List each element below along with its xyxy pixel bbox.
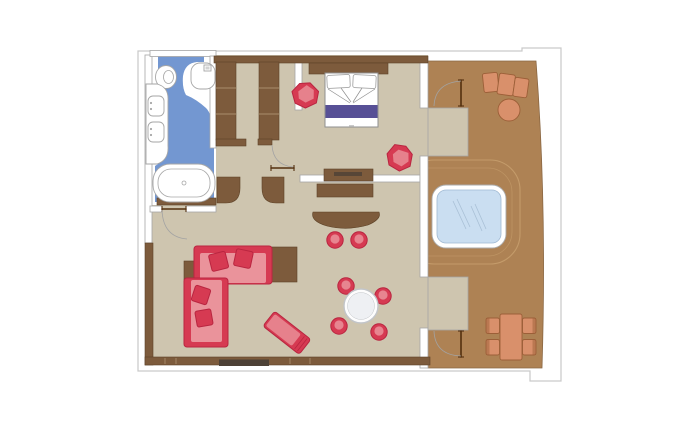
round-side-table <box>498 99 520 121</box>
bar-stool <box>351 232 367 248</box>
whirlpool-tub <box>432 185 506 248</box>
corridor-stub-left <box>217 177 240 203</box>
top-wall <box>214 56 428 63</box>
bottom-wall <box>145 357 430 365</box>
bathtub <box>153 164 215 202</box>
vanity-double-sink <box>146 84 168 164</box>
double-bed <box>325 73 378 127</box>
dining-stool <box>331 318 347 334</box>
console-table <box>270 247 297 282</box>
bed-runner <box>326 105 378 118</box>
media-unit <box>219 360 269 367</box>
tv-console <box>324 169 373 181</box>
desk <box>317 184 373 197</box>
round-dining-table <box>344 289 378 323</box>
outdoor-dining-table <box>500 314 522 360</box>
bar-stool <box>327 232 343 248</box>
toilet <box>191 63 215 89</box>
headboard <box>309 63 388 74</box>
dining-stool <box>371 324 387 340</box>
terrace-vestibule-top <box>428 108 468 156</box>
terrace-vestibule-bottom <box>428 277 468 330</box>
floorplan-canvas <box>0 0 700 433</box>
left-wall <box>145 243 153 365</box>
corridor-stub-right <box>262 177 284 203</box>
floorplan-page <box>0 0 700 433</box>
wardrobe-right <box>258 62 279 145</box>
